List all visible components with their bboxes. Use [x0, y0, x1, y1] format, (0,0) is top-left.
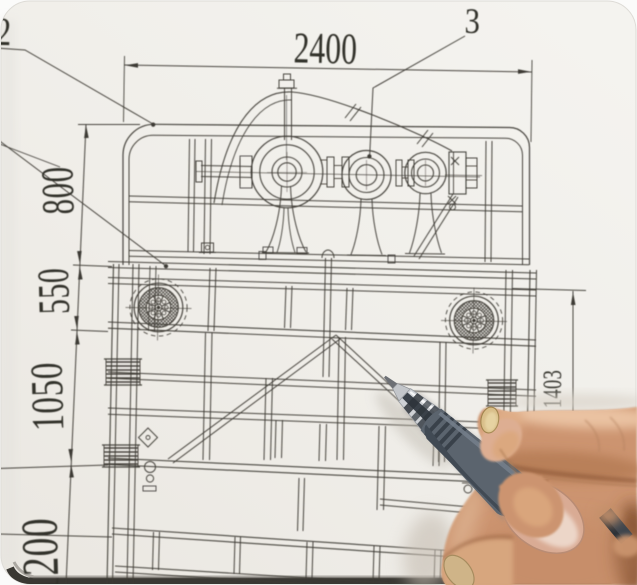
svg-text:1050: 1050	[20, 361, 73, 431]
svg-text:1200: 1200	[11, 517, 70, 585]
svg-text:3: 3	[464, 2, 480, 42]
svg-text:550: 550	[29, 267, 80, 315]
svg-text:800: 800	[32, 166, 84, 216]
svg-text:2400: 2400	[293, 24, 357, 74]
